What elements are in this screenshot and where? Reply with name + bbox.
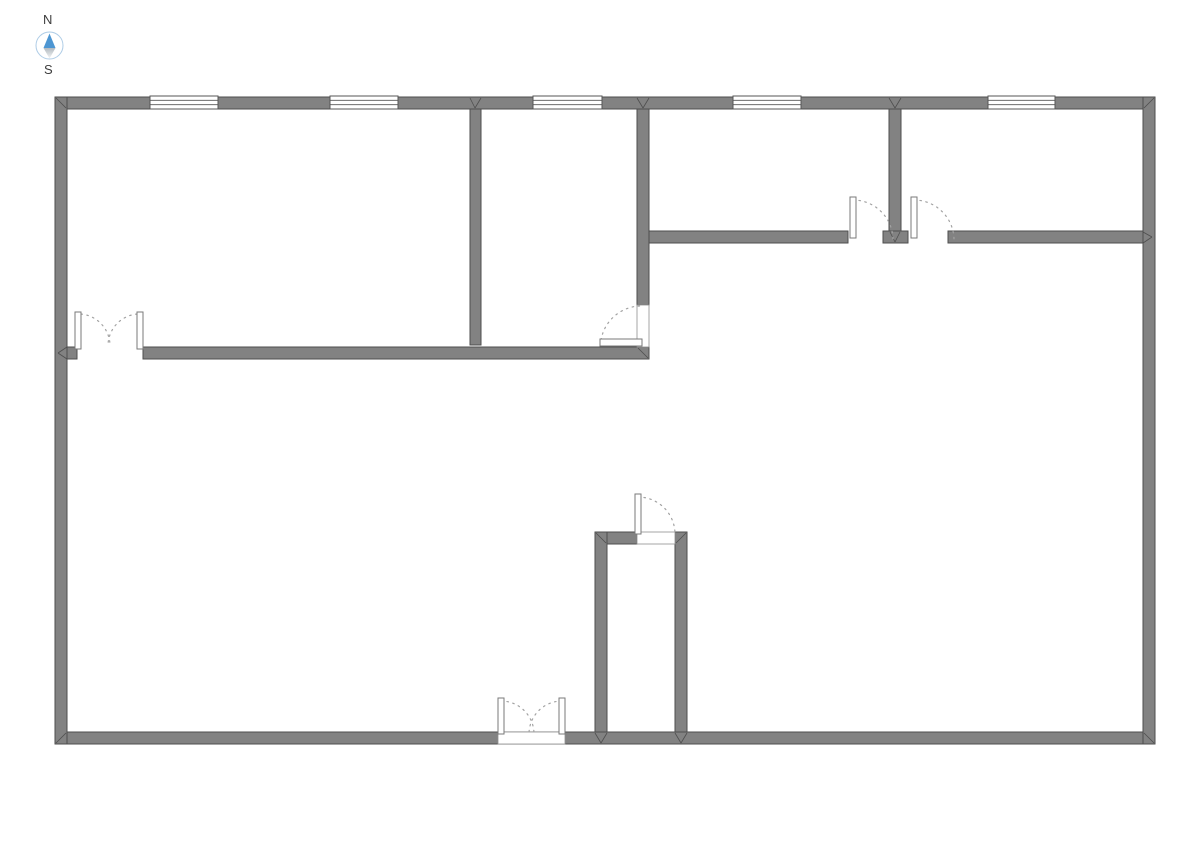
window: [988, 96, 1055, 109]
wall-segment: [948, 231, 1143, 243]
window: [150, 96, 218, 109]
wall-segment: [649, 231, 848, 243]
door-swing-arc: [601, 306, 640, 340]
door-leaf: [137, 312, 143, 349]
door-swing-arc: [638, 497, 675, 534]
compass-south-label: S: [44, 63, 53, 76]
wall-segment: [675, 532, 687, 732]
door-swing-arc: [501, 701, 534, 734]
door-leaf: [600, 339, 642, 346]
compass-south-needle-icon: [44, 48, 56, 59]
floorplan-page: N S: [0, 0, 1191, 841]
window: [533, 96, 602, 109]
door-swing-arc: [529, 701, 562, 734]
compass-north-label: N: [43, 13, 52, 26]
door-leaf: [559, 698, 565, 734]
door-opening: [498, 732, 565, 744]
window: [330, 96, 398, 109]
wall-segment: [889, 109, 901, 243]
wall-segment: [595, 532, 607, 732]
door-leaf: [498, 698, 504, 734]
door-leaf: [635, 494, 641, 534]
wall-segment: [143, 347, 649, 359]
wall-segment: [55, 732, 1155, 744]
floorplan-geometry: [55, 96, 1155, 744]
door-leaf: [850, 197, 856, 238]
door-leaf: [911, 197, 917, 238]
compass-north-needle-icon: [44, 34, 56, 49]
wall-segment: [55, 97, 67, 744]
door-swing-arc: [108, 314, 137, 346]
door-leaf: [75, 312, 81, 349]
wall-segment: [637, 109, 649, 305]
floorplan-canvas: [0, 0, 1191, 841]
compass-icon: [36, 32, 63, 59]
window: [733, 96, 801, 109]
door-swing-arc: [81, 314, 110, 346]
wall-segment: [1143, 97, 1155, 744]
wall-segment: [470, 109, 481, 345]
door-opening: [637, 532, 675, 544]
